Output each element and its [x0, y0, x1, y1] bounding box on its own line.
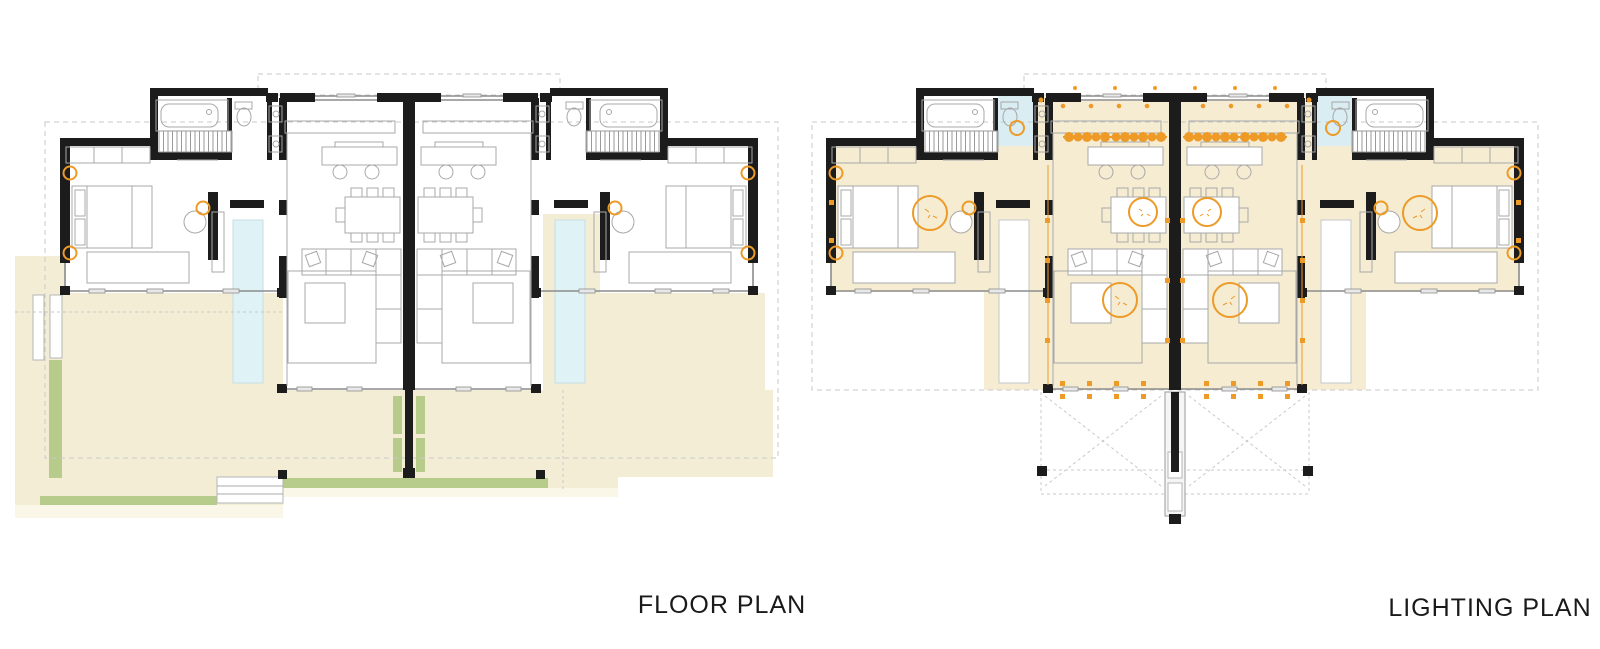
terrace-steps: [217, 477, 283, 503]
lighting-plan: [812, 74, 1538, 524]
pool-right: [555, 220, 585, 383]
floor-plan: [15, 74, 778, 518]
architectural-plans-canvas: FLOOR PLAN LIGHTING PLAN: [0, 0, 1600, 649]
lighting-plan-label: LIGHTING PLAN: [1388, 594, 1591, 622]
drawing-sheet: FLOOR PLAN LIGHTING PLAN: [0, 0, 1600, 649]
floor-plan-label: FLOOR PLAN: [638, 591, 806, 619]
central-walkway: [1165, 392, 1185, 524]
pool-left: [233, 220, 263, 383]
